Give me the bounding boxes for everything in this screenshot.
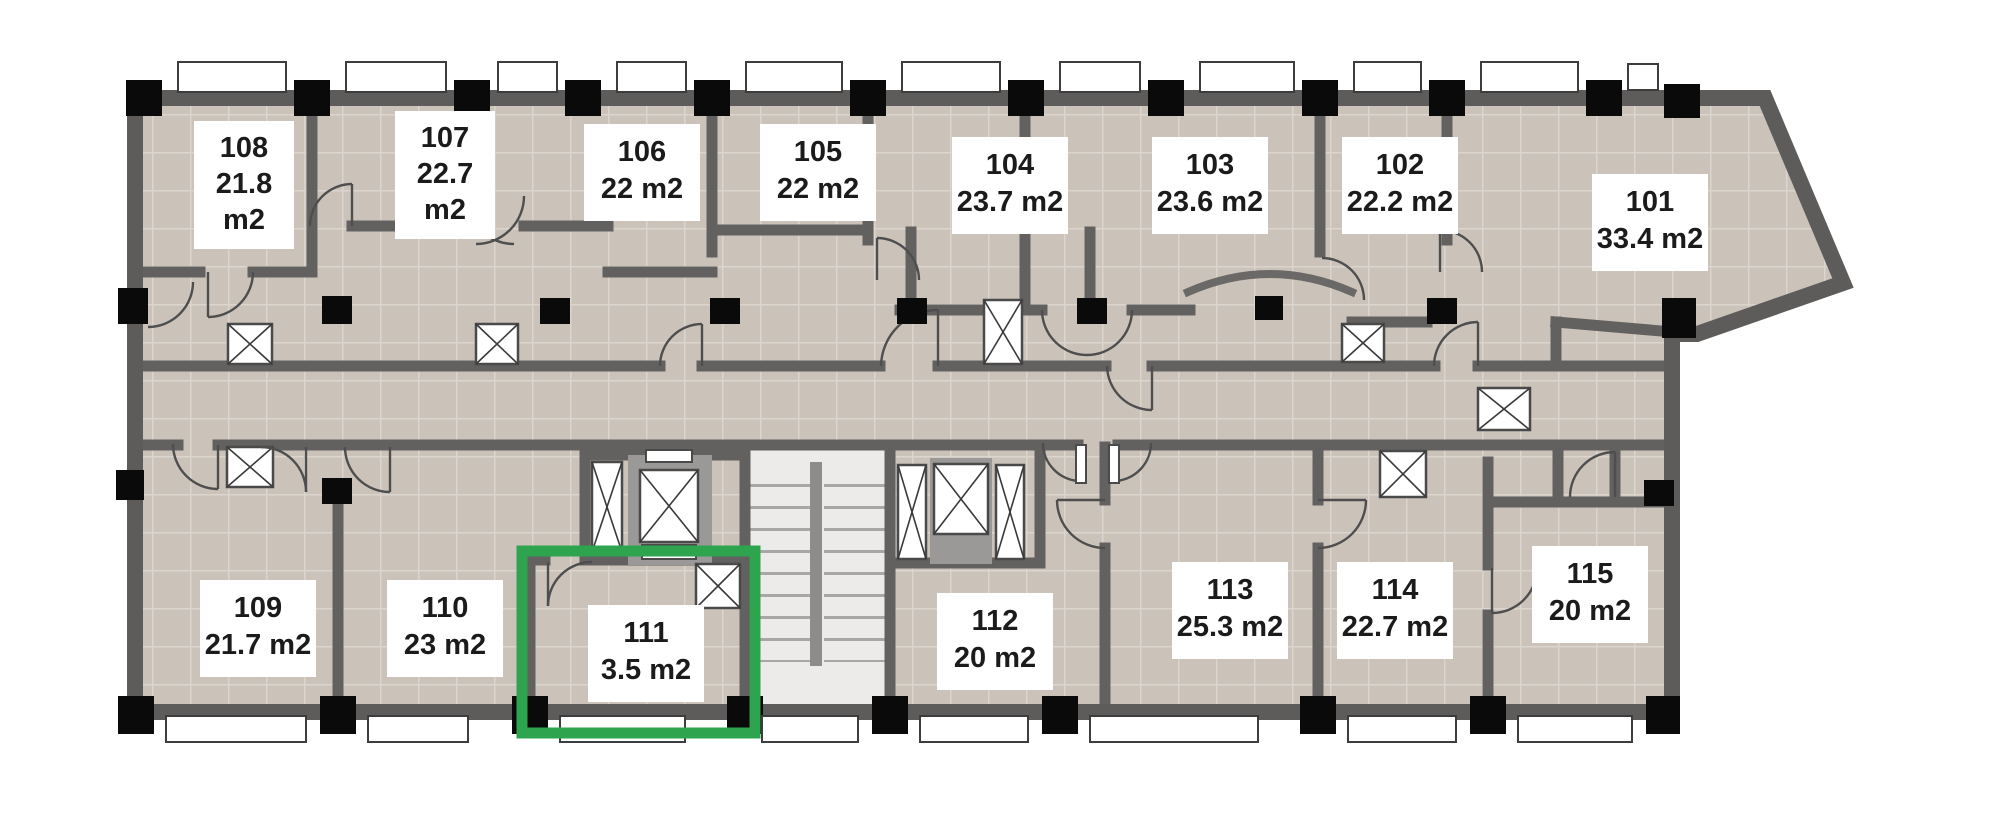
room-111[interactable]: 111 3.5 m2: [588, 605, 704, 702]
staircase: [748, 450, 886, 712]
shaft-x-icon: [228, 324, 272, 364]
room-109[interactable]: 109 21.7 m2: [200, 580, 316, 677]
shaft-x-icon: [476, 324, 518, 364]
room-area: 22.7: [417, 158, 473, 190]
stair-stringer: [810, 462, 822, 666]
room-103[interactable]: 103 23.6 m2: [1152, 137, 1268, 234]
room-area: 33.4 m2: [1597, 223, 1703, 255]
room-area: 3.5 m2: [601, 654, 691, 686]
room-102[interactable]: 102 22.2 m2: [1342, 137, 1458, 234]
room-114[interactable]: 114 22.7 m2: [1337, 562, 1453, 659]
room-area-unit: m2: [424, 194, 466, 226]
room-number: 115: [1567, 558, 1614, 590]
room-area: 23.6 m2: [1157, 186, 1263, 218]
room-108[interactable]: 108 21.8 m2: [194, 121, 294, 249]
shaft-x-icon: [1380, 451, 1426, 497]
room-number: 110: [422, 592, 469, 624]
shaft-x-icon: [696, 564, 740, 608]
room-105[interactable]: 105 22 m2: [760, 124, 876, 221]
room-number: 102: [1376, 149, 1424, 181]
room-113[interactable]: 113 25.3 m2: [1172, 562, 1288, 659]
room-number: 101: [1626, 186, 1674, 218]
room-106[interactable]: 106 22 m2: [584, 124, 700, 221]
room-number: 114: [1372, 574, 1419, 606]
room-area: 22 m2: [777, 173, 859, 205]
room-107[interactable]: 107 22.7 m2: [395, 111, 495, 239]
shaft-x-icon: [984, 300, 1022, 364]
shaft-x-icon: [227, 447, 273, 487]
room-number: 103: [1186, 149, 1234, 181]
room-number: 107: [421, 122, 469, 154]
elevator-right: [898, 458, 1024, 564]
room-104[interactable]: 104 23.7 m2: [952, 137, 1068, 234]
room-110[interactable]: 110 23 m2: [387, 580, 503, 677]
room-area: 22.2 m2: [1347, 186, 1453, 218]
room-area: 20 m2: [954, 642, 1036, 674]
room-number: 113: [1207, 574, 1254, 606]
room-area: 25.3 m2: [1177, 611, 1283, 643]
room-area: 23 m2: [404, 629, 486, 661]
room-area: 23.7 m2: [957, 186, 1063, 218]
room-101[interactable]: 101 33.4 m2: [1592, 174, 1708, 271]
shaft-x-icon: [1342, 324, 1384, 362]
room-number: 104: [986, 149, 1034, 181]
room-number: 108: [220, 132, 268, 164]
room-number: 106: [618, 136, 666, 168]
floor-plan-page: 101 33.4 m2 102 22.2 m2 103 23.6 m2 104 …: [0, 0, 2000, 831]
room-area: 22 m2: [601, 173, 683, 205]
room-number: 112: [972, 605, 1019, 637]
room-area-unit: m2: [223, 204, 265, 236]
room-area: 22.7 m2: [1342, 611, 1448, 643]
room-115[interactable]: 115 20 m2: [1532, 546, 1648, 643]
room-112[interactable]: 112 20 m2: [937, 593, 1053, 690]
room-area: 21.8: [216, 168, 272, 200]
room-area: 21.7 m2: [205, 629, 311, 661]
room-number: 111: [623, 617, 668, 649]
floor-plan: 101 33.4 m2 102 22.2 m2 103 23.6 m2 104 …: [0, 0, 2000, 831]
room-number: 105: [794, 136, 842, 168]
room-number: 109: [234, 592, 282, 624]
room-area: 20 m2: [1549, 595, 1631, 627]
shaft-x-icon: [1478, 388, 1530, 430]
